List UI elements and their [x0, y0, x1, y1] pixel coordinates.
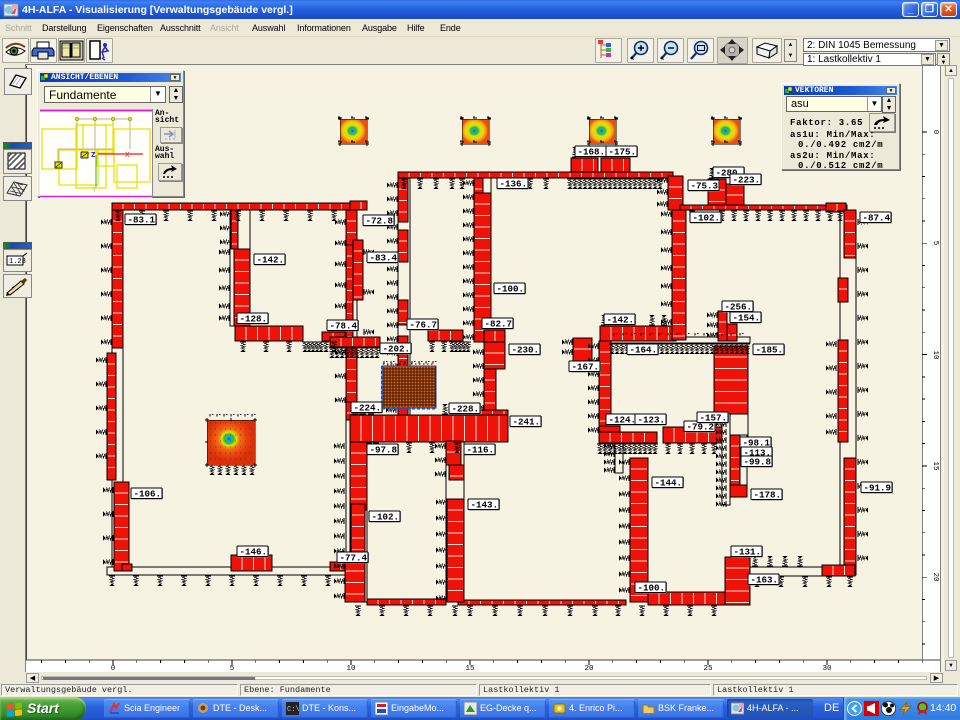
svg-text:-223.: -223. [733, 174, 761, 185]
svg-text:-178.: -178. [754, 489, 782, 500]
svg-text:10: 10 [931, 350, 939, 360]
svg-text:-77.4: -77.4 [340, 552, 368, 563]
svg-text:-164.: -164. [630, 344, 658, 355]
svg-text:-128.: -128. [240, 313, 268, 324]
svg-text:20: 20 [584, 665, 594, 672]
svg-text:-230.: -230. [512, 344, 540, 355]
svg-text:-157.: -157. [700, 412, 728, 423]
svg-text:-102.: -102. [693, 212, 721, 223]
svg-text:-97.8: -97.8 [370, 444, 398, 455]
svg-text:-256.: -256. [725, 301, 753, 312]
svg-text:-116.: -116. [467, 444, 495, 455]
svg-text:-185.: -185. [756, 344, 784, 355]
svg-text:-91.9: -91.9 [864, 482, 892, 493]
svg-text:25: 25 [703, 665, 713, 672]
svg-text:Y: Y [92, 187, 97, 195]
svg-text:C:\: C:\ [287, 706, 299, 714]
svg-text:-144.: -144. [655, 477, 683, 488]
svg-text:-202.: -202. [383, 343, 411, 354]
svg-text:-83.4: -83.4 [370, 252, 398, 263]
svg-text:-143.: -143. [471, 499, 499, 510]
svg-text:-224.: -224. [354, 402, 382, 413]
svg-text:-228.: -228. [452, 403, 480, 414]
svg-text:-87.4: -87.4 [863, 212, 891, 223]
svg-text:1.23: 1.23 [9, 258, 26, 266]
svg-text:-72.8: -72.8 [366, 215, 394, 226]
svg-text:-168.: -168. [578, 146, 606, 157]
svg-text:-142.: -142. [257, 254, 285, 265]
svg-text:-100.: -100. [497, 283, 525, 294]
svg-text:-175.: -175. [609, 146, 637, 157]
svg-text:15: 15 [931, 461, 939, 471]
svg-text:-102.: -102. [372, 511, 400, 522]
svg-text:Z: Z [91, 152, 96, 160]
svg-text:15: 15 [465, 665, 475, 672]
svg-text:5: 5 [931, 241, 939, 246]
svg-text:-76.7: -76.7 [410, 319, 438, 330]
svg-text:-146.: -146. [240, 546, 268, 557]
svg-text:-100.: -100. [638, 582, 666, 593]
svg-text:20: 20 [931, 572, 939, 582]
svg-text:-78.4: -78.4 [330, 320, 358, 331]
svg-text:-124.: -124. [609, 414, 637, 425]
svg-text:-99.8: -99.8 [744, 456, 772, 467]
svg-text:10: 10 [346, 665, 356, 672]
svg-text:-167.: -167. [572, 361, 600, 372]
svg-text:-83.1: -83.1 [128, 214, 156, 225]
svg-text:0: 0 [931, 130, 939, 135]
svg-text:-75.3: -75.3 [691, 180, 719, 191]
svg-text:-241.: -241. [513, 416, 541, 427]
svg-text:-154.: -154. [733, 312, 761, 323]
svg-text:-82.7: -82.7 [485, 318, 513, 329]
svg-text:-131.: -131. [734, 546, 762, 557]
svg-text:-136.: -136. [500, 178, 528, 189]
svg-text:-142.: -142. [607, 314, 635, 325]
svg-text:-106.: -106. [134, 488, 162, 499]
svg-text:30: 30 [822, 665, 832, 672]
svg-text:X: X [125, 152, 130, 160]
svg-text:5: 5 [230, 665, 235, 672]
svg-text:0: 0 [111, 665, 116, 672]
svg-text:-163.: -163. [751, 574, 779, 585]
svg-text:-123.: -123. [638, 414, 666, 425]
